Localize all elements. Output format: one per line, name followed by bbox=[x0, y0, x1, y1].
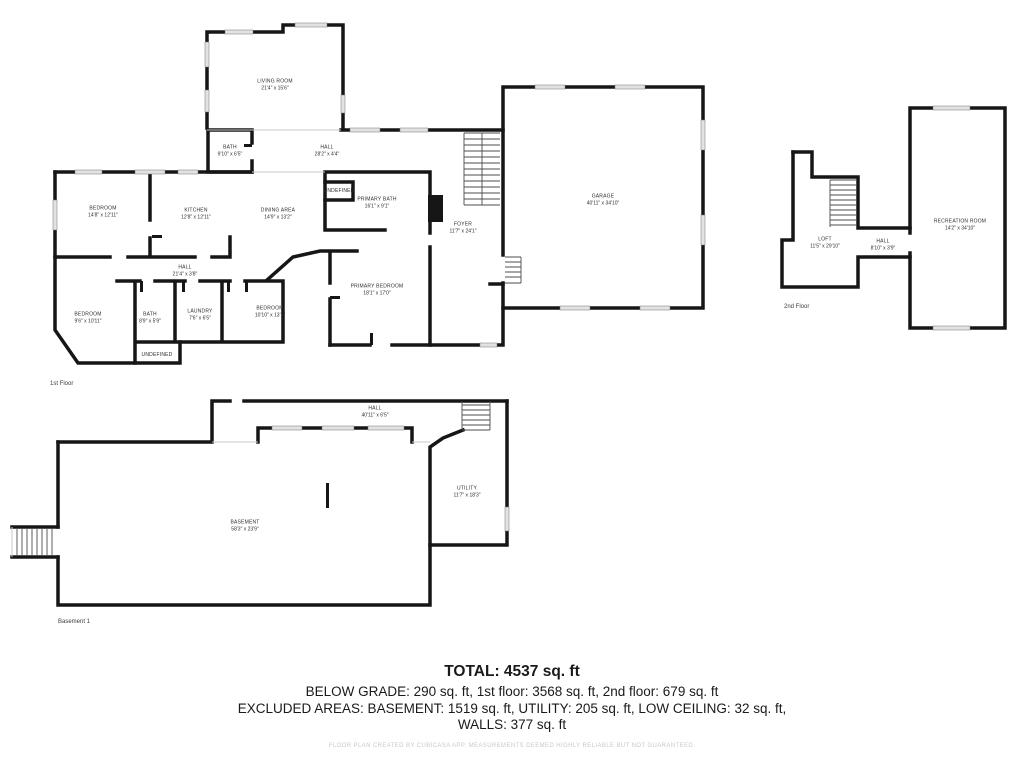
room-label-primary-bath: PRIMARY BATH 16'1" x 9'1" bbox=[357, 197, 396, 210]
room-label-bedroom-s: BEDROOM 10'10" x 13'1" bbox=[255, 306, 285, 319]
room-label-hall-upper: HALL 28'2" x 4'4" bbox=[315, 145, 340, 158]
room-label-bedroom-left: BEDROOM 14'8" x 12'11" bbox=[88, 206, 118, 219]
room-label-living-room: LIVING ROOM 21'4" x 15'6" bbox=[257, 79, 293, 92]
basement-floor-plan: HALL 40'11" x 6'5" BASEMENT 58'3" x 23'9… bbox=[10, 395, 515, 645]
basement-drawing bbox=[10, 395, 515, 645]
first-floor-plan: LIVING ROOM 21'4" x 15'6" BATH 9'10" x 6… bbox=[40, 15, 720, 397]
room-label-dining-area: DINING AREA 14'9" x 13'2" bbox=[261, 208, 295, 221]
room-label-kitchen: KITCHEN 12'8" x 12'11" bbox=[181, 208, 211, 221]
room-label-hall-lower: HALL 21'4" x 3'8" bbox=[173, 265, 198, 278]
basement-walls bbox=[12, 401, 507, 605]
basement-upper-staircase bbox=[462, 401, 490, 430]
basement-caption: Basement 1 bbox=[58, 619, 90, 625]
area-summary: TOTAL: 4537 sq. ft BELOW GRADE: 290 sq. … bbox=[0, 663, 1024, 734]
total-area-text: TOTAL: 4537 sq. ft bbox=[0, 663, 1024, 681]
floor-plan-page: LIVING ROOM 21'4" x 15'6" BATH 9'10" x 6… bbox=[0, 0, 1024, 768]
room-label-garage: GARAGE 40'11" x 34'10" bbox=[587, 194, 620, 207]
room-label-recreation-room: RECREATION ROOM 14'2" x 34'10" bbox=[934, 219, 986, 232]
loft-staircase bbox=[830, 180, 856, 227]
room-label-foyer: FOYER 11'7" x 24'1" bbox=[449, 222, 476, 235]
second-floor-plan: LOFT 11'5" x 29'10" HALL 8'10" x 3'9" RE… bbox=[770, 95, 1015, 335]
room-label-undefined-lower: UNDEFINED bbox=[142, 352, 173, 359]
disclaimer-text: FLOOR PLAN CREATED BY CUBICASA APP. MEAS… bbox=[0, 743, 1024, 749]
garage-step-staircase bbox=[505, 257, 521, 283]
room-label-undefined-mid: UNDEFINED bbox=[324, 188, 355, 195]
area-separator-lines bbox=[12, 442, 430, 557]
room-label-basement: BASEMENT 58'3" x 23'9" bbox=[230, 520, 259, 533]
room-label-hall-second: HALL 8'10" x 3'9" bbox=[871, 239, 896, 252]
room-label-laundry: LAUNDRY 7'6" x 6'5" bbox=[187, 309, 212, 322]
basement-entry-staircase bbox=[17, 529, 52, 555]
room-label-bedroom-sw: BEDROOM 9'6" x 10'11" bbox=[74, 312, 101, 325]
second-floor-drawing bbox=[770, 95, 1015, 335]
support-wall-stub bbox=[326, 483, 329, 508]
excluded-areas-text: EXCLUDED AREAS: BASEMENT: 1519 sq. ft, U… bbox=[0, 701, 1024, 718]
second-floor-caption: 2nd Floor bbox=[784, 304, 809, 310]
first-floor-caption: 1st Floor bbox=[50, 381, 73, 387]
below-grade-text: BELOW GRADE: 290 sq. ft, 1st floor: 3568… bbox=[0, 684, 1024, 701]
room-label-bath-upper: BATH 9'10" x 6'5" bbox=[218, 145, 243, 158]
window-symbols bbox=[272, 426, 509, 531]
room-label-loft: LOFT 11'5" x 29'10" bbox=[810, 237, 840, 250]
walls-area-text: WALLS: 377 sq. ft bbox=[0, 717, 1024, 734]
room-label-hall-basement: HALL 40'11" x 6'5" bbox=[361, 406, 388, 419]
foyer-staircase bbox=[464, 133, 500, 205]
room-label-utility: UTILITY 11'7" x 18'3" bbox=[453, 486, 480, 499]
room-label-bath-lower: BATH 8'9" x 5'9" bbox=[139, 312, 161, 325]
room-label-primary-bedroom: PRIMARY BEDROOM 18'1" x 17'0" bbox=[351, 284, 404, 297]
